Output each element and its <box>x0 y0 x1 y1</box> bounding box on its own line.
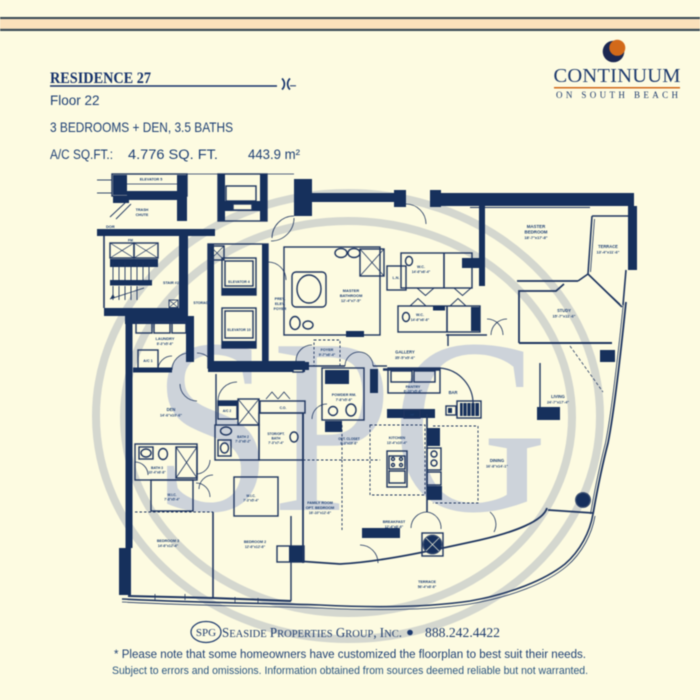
svg-text:PANTRY: PANTRY <box>406 385 421 389</box>
svg-text:CONTINUUM: CONTINUUM <box>554 65 681 87</box>
svg-text:4.776 SQ. FT.: 4.776 SQ. FT. <box>128 147 218 162</box>
svg-text:7'-3"x8'-2": 7'-3"x8'-2" <box>235 440 251 444</box>
svg-text:A/C 1: A/C 1 <box>143 359 152 363</box>
svg-text:12'-4"x7'-5": 12'-4"x7'-5" <box>341 299 361 303</box>
svg-text:TRASH: TRASH <box>136 208 149 212</box>
svg-text:Subject to errors and omission: Subject to errors and omissions. Informa… <box>112 665 588 677</box>
svg-text:SEASIDE PROPERTIES GROUP, INC.: SEASIDE PROPERTIES GROUP, INC. <box>222 625 402 640</box>
svg-text:A/C 2: A/C 2 <box>223 409 232 413</box>
svg-text:TERRACE: TERRACE <box>598 244 618 249</box>
svg-text:OPT. CLOSET: OPT. CLOSET <box>338 437 360 441</box>
svg-text:STOR/OPT.: STOR/OPT. <box>267 432 284 436</box>
svg-text:6'-3"x19'-6": 6'-3"x19'-6" <box>340 442 358 446</box>
svg-text:ELEV.: ELEV. <box>275 302 285 306</box>
svg-text:7'-8"x5'-6": 7'-8"x5'-6" <box>336 398 353 402</box>
svg-text:STUDY: STUDY <box>557 308 571 313</box>
svg-text:18'-7"x17'-8": 18'-7"x17'-8" <box>524 235 547 240</box>
svg-text:TERRACE: TERRACE <box>418 580 436 584</box>
svg-text:FOYER: FOYER <box>274 307 287 311</box>
svg-text:10'-4"x6'-8": 10'-4"x6'-8" <box>148 471 166 475</box>
svg-text:7'-3"x5'-4": 7'-3"x5'-4" <box>243 499 259 503</box>
svg-text:OPT. BEDROOM: OPT. BEDROOM <box>306 506 334 510</box>
svg-text:14'-6"x6'-4": 14'-6"x6'-4" <box>412 270 431 274</box>
svg-text:ELEVATOR 4: ELEVATOR 4 <box>228 280 249 284</box>
svg-text:POWDER RM.: POWDER RM. <box>332 393 356 397</box>
svg-text:BEDROOM 2: BEDROOM 2 <box>244 540 266 544</box>
svg-text:7'-3"x7'-4": 7'-3"x7'-4" <box>268 441 284 445</box>
svg-text:STAIR #2: STAIR #2 <box>163 281 179 285</box>
svg-text:RESIDENCE 27: RESIDENCE 27 <box>50 70 151 87</box>
svg-text:LIVING: LIVING <box>551 394 565 399</box>
svg-text:LAUNDRY: LAUNDRY <box>156 336 175 341</box>
svg-text:CHUTE: CHUTE <box>136 213 149 217</box>
svg-text:BATH 3: BATH 3 <box>151 466 163 470</box>
svg-text:14'-6"x6'-6": 14'-6"x6'-6" <box>411 318 430 322</box>
svg-text:DINING: DINING <box>490 458 504 463</box>
svg-text:14'-6"x12'-4": 14'-6"x12'-4" <box>158 544 179 548</box>
svg-text:ELEVATOR 5: ELEVATOR 5 <box>140 178 163 182</box>
svg-text:24'-7"x17'-4": 24'-7"x17'-4" <box>547 401 569 405</box>
svg-text:56'-4"x8'-6": 56'-4"x8'-6" <box>418 585 437 589</box>
svg-text:15'-7"x11'-6": 15'-7"x11'-6" <box>552 314 575 319</box>
svg-text:443.9 m²: 443.9 m² <box>248 147 300 162</box>
svg-text:C.O.: C.O. <box>280 406 287 410</box>
svg-text:PREV.: PREV. <box>275 297 286 301</box>
svg-text:BAR: BAR <box>449 390 458 395</box>
svg-text:W.I.C.: W.I.C. <box>167 493 176 497</box>
svg-text:W.C.: W.C. <box>417 265 425 269</box>
svg-text:MASTER: MASTER <box>527 224 546 229</box>
svg-text:BEDROOM: BEDROOM <box>525 230 548 235</box>
svg-text:7'-8"x5'-4": 7'-8"x5'-4" <box>164 498 180 502</box>
svg-text:16'-8"x14'-1": 16'-8"x14'-1" <box>486 465 508 469</box>
svg-text:FM: FM <box>128 239 133 243</box>
svg-text:STORAGE: STORAGE <box>193 301 211 305</box>
svg-text:W.C.: W.C. <box>416 313 424 317</box>
svg-text:13'-4"x10'-4": 13'-4"x10'-4" <box>387 441 408 445</box>
svg-text:14'-6"x10'-6": 14'-6"x10'-6" <box>160 414 182 418</box>
svg-text:12'-4"x8'-6": 12'-4"x8'-6" <box>385 525 404 529</box>
svg-text:12'-6"x12'-6": 12'-6"x12'-6" <box>245 545 266 549</box>
svg-text:SPG: SPG <box>196 627 216 639</box>
svg-text:35'-5"x5'-6": 35'-5"x5'-6" <box>395 356 415 360</box>
svg-text:FAMILY ROOM: FAMILY ROOM <box>307 501 333 505</box>
svg-text:8'-3"x5'-6": 8'-3"x5'-6" <box>157 342 174 346</box>
svg-text:BATH 2: BATH 2 <box>237 435 249 439</box>
svg-text:BATH: BATH <box>272 437 282 441</box>
svg-text:3 BEDROOMS + DEN, 3.5 BATHS: 3 BEDROOMS + DEN, 3.5 BATHS <box>50 119 233 135</box>
svg-text:W.I.C.: W.I.C. <box>246 494 255 498</box>
svg-text:GALLERY: GALLERY <box>395 350 415 355</box>
svg-text:A/C SQ.FT.:: A/C SQ.FT.: <box>50 147 113 162</box>
svg-text:BREAKFAST: BREAKFAST <box>383 520 406 524</box>
svg-text:ref: ref <box>410 413 414 417</box>
svg-text:6'-10"x5'-6": 6'-10"x5'-6" <box>404 390 423 394</box>
svg-text:* Please note that some homeow: * Please note that some homeowners have … <box>114 647 586 661</box>
svg-text:KITCHEN: KITCHEN <box>389 436 406 440</box>
svg-text:Floor 22: Floor 22 <box>50 93 100 108</box>
svg-text:13'-4"x11'-6": 13'-4"x11'-6" <box>596 250 619 255</box>
svg-text:FOYER: FOYER <box>321 348 334 352</box>
svg-text:16'-10"x12'-6": 16'-10"x12'-6" <box>309 511 332 515</box>
svg-text:9'-7"x6'-4": 9'-7"x6'-4" <box>319 353 336 357</box>
svg-text:DOR: DOR <box>106 224 115 229</box>
svg-text:DEN: DEN <box>167 407 176 412</box>
svg-text:L.N.: L.N. <box>393 276 400 280</box>
svg-text:BATHROOM: BATHROOM <box>340 293 363 298</box>
svg-text:ELEVATOR 10: ELEVATOR 10 <box>227 328 250 332</box>
svg-text:BEDROOM 3: BEDROOM 3 <box>157 539 179 543</box>
svg-text:888.242.4422: 888.242.4422 <box>425 625 500 640</box>
